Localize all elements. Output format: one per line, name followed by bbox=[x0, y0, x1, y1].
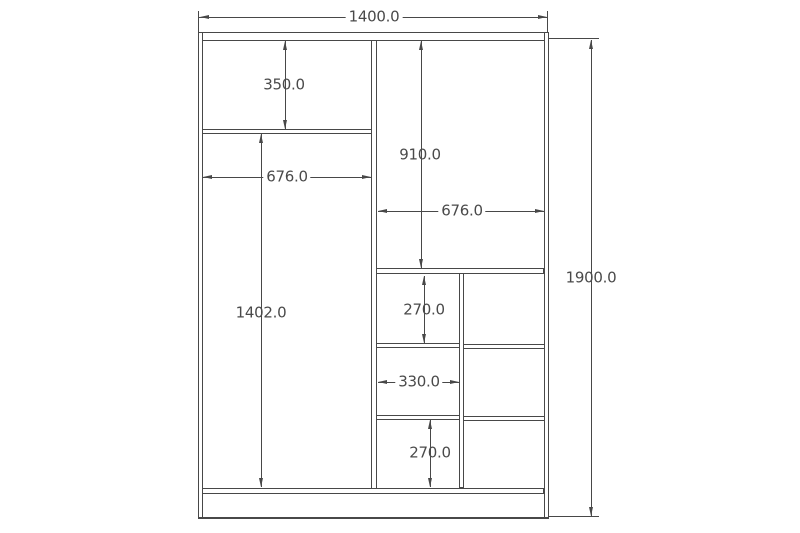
arrowhead-right bbox=[538, 15, 547, 19]
dim-label-overall-width: 1400.0 bbox=[346, 9, 403, 26]
left-section-shelf bbox=[202, 129, 372, 134]
arrowhead-up bbox=[422, 276, 426, 285]
dim-label-left-main-height: 1402.0 bbox=[233, 305, 290, 322]
dim-label-left-width: 676.0 bbox=[263, 169, 310, 186]
arrowhead-up bbox=[589, 40, 593, 49]
arrowhead-up bbox=[428, 420, 432, 429]
extension-line-bottom bbox=[549, 516, 599, 517]
arrowhead-right bbox=[362, 175, 371, 179]
arrowhead-right bbox=[450, 380, 459, 384]
arrowhead-down bbox=[259, 478, 263, 487]
dim-label-right-width: 676.0 bbox=[438, 203, 485, 220]
dim-label-overall-height: 1900.0 bbox=[563, 270, 620, 287]
arrowhead-down bbox=[422, 334, 426, 343]
extension-line-right bbox=[547, 11, 548, 32]
arrowhead-left bbox=[378, 380, 387, 384]
cubby-shelf-right-lower bbox=[463, 416, 545, 421]
dim-label-cubby-upper-height: 270.0 bbox=[400, 302, 447, 319]
dim-label-left-top-height: 350.0 bbox=[260, 77, 307, 94]
dim-label-cubby-lower-height: 270.0 bbox=[406, 445, 453, 462]
dim-label-right-top-height: 910.0 bbox=[396, 147, 443, 164]
center-divider-panel bbox=[371, 40, 377, 489]
wardrobe-dimension-drawing: 1400.0 1900.0 350.0 676.0 1402.0 910.0 bbox=[0, 0, 800, 533]
arrowhead-left bbox=[378, 209, 387, 213]
arrowhead-right bbox=[535, 209, 544, 213]
arrowhead-down bbox=[283, 120, 287, 129]
arrowhead-up bbox=[419, 41, 423, 50]
arrowhead-down bbox=[589, 507, 593, 516]
arrowhead-down bbox=[419, 259, 423, 268]
cabinet-left-side-panel bbox=[198, 32, 203, 519]
cubby-shelf-left-lower bbox=[376, 415, 460, 420]
arrowhead-down bbox=[428, 478, 432, 487]
extension-line-top bbox=[549, 38, 599, 39]
arrowhead-left bbox=[203, 175, 212, 179]
arrowhead-up bbox=[259, 134, 263, 143]
cubby-shelf-left-upper bbox=[376, 343, 460, 348]
right-lower-divider-panel bbox=[459, 273, 464, 488]
dim-label-cubby-width: 330.0 bbox=[395, 374, 442, 391]
extension-line-left bbox=[198, 11, 199, 32]
cabinet-bottom-edge bbox=[198, 517, 549, 519]
arrowhead-left bbox=[200, 15, 209, 19]
cabinet-right-side-panel bbox=[544, 32, 549, 519]
arrowhead-up bbox=[283, 41, 287, 50]
cubby-shelf-right-upper bbox=[463, 344, 545, 349]
